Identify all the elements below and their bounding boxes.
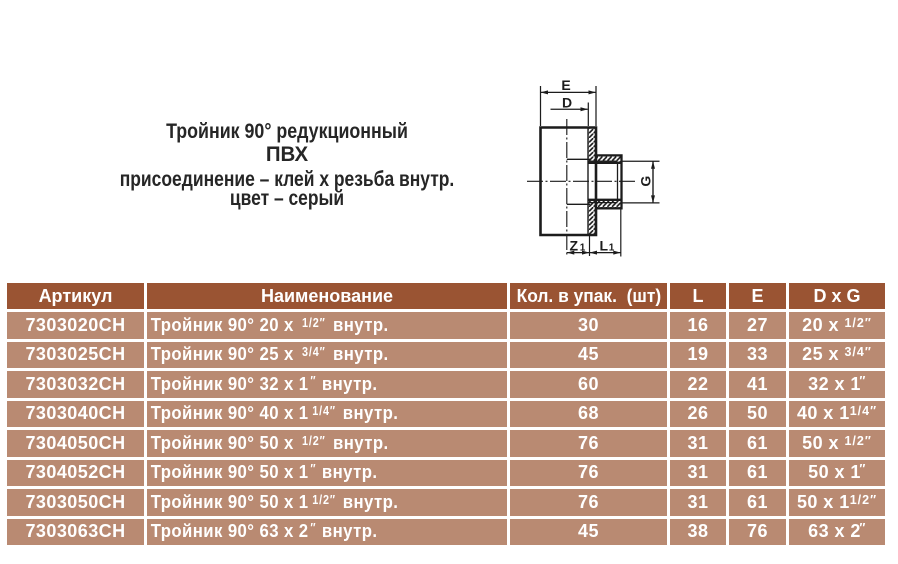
svg-text:1: 1	[609, 243, 615, 254]
svg-text:1: 1	[580, 242, 586, 253]
svg-text:E: E	[561, 77, 570, 93]
svg-text:Z: Z	[570, 237, 579, 253]
svg-text:L: L	[600, 238, 609, 254]
svg-text:G: G	[638, 176, 654, 187]
svg-text:D: D	[562, 94, 572, 110]
